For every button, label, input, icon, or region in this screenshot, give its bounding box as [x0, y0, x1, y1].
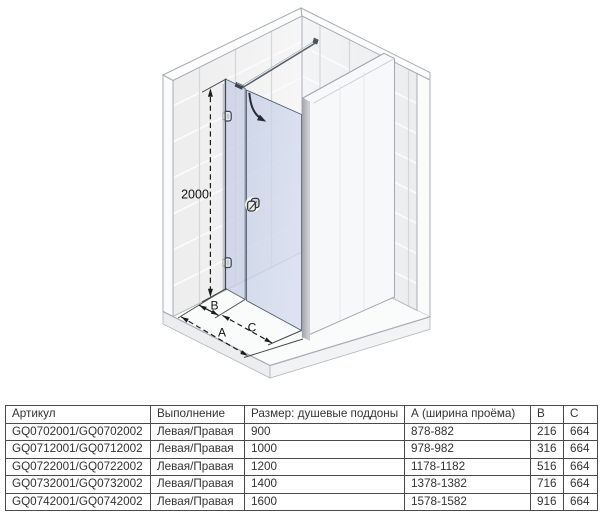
- svg-text:2000: 2000: [181, 188, 209, 202]
- svg-text:B: B: [210, 299, 218, 313]
- svg-text:A: A: [218, 326, 226, 340]
- svg-text:C: C: [248, 321, 257, 335]
